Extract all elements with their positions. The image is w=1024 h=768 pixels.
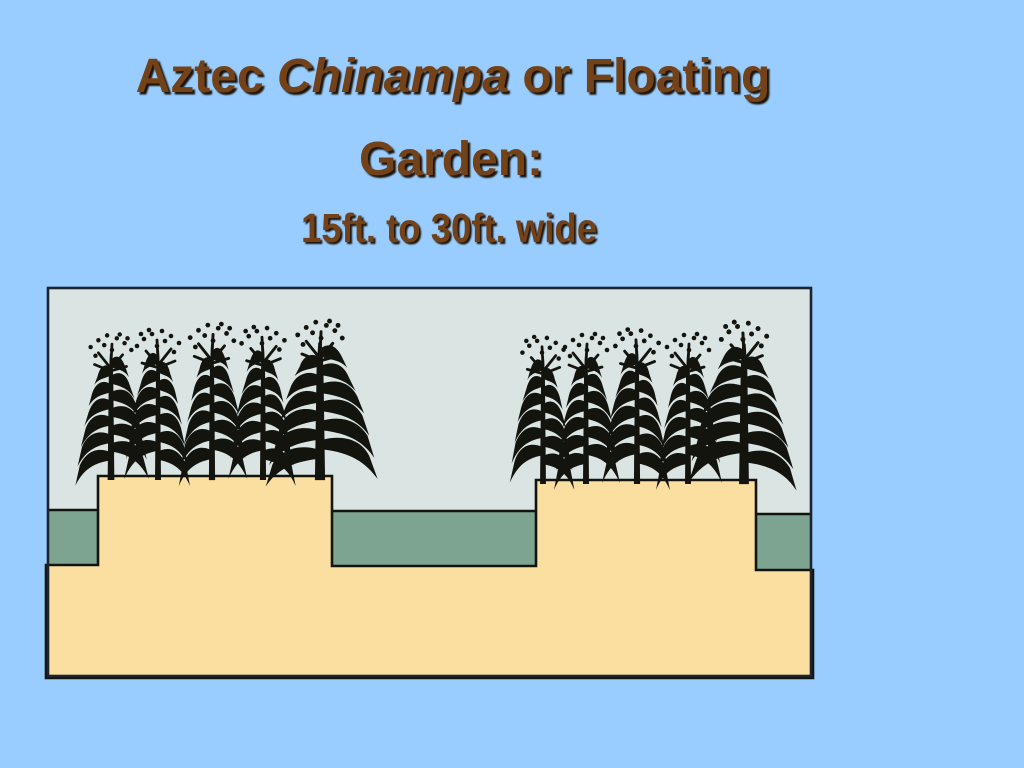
svg-text:Garden:: Garden:: [359, 133, 543, 186]
svg-text:15ft. to 30ft. wide: 15ft. to 30ft. wide: [301, 205, 597, 251]
svg-text:Aztec Chinampa or Floating: Aztec Chinampa or Floating: [136, 50, 771, 103]
